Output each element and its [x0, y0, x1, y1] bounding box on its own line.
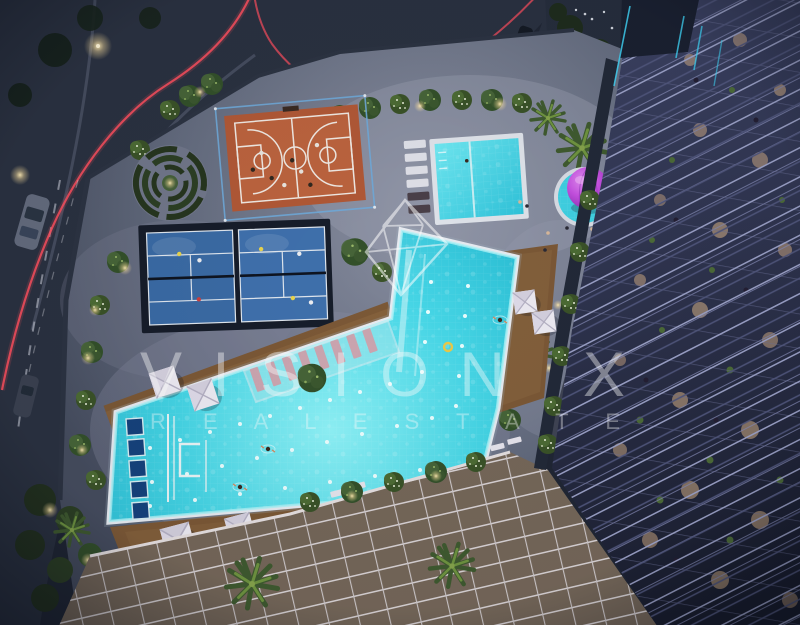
scene-svg: VISION X R E A L E S T A T E — [0, 0, 800, 625]
vignette-overlay — [0, 0, 800, 625]
aerial-night-render: VISION X R E A L E S T A T E — [0, 0, 800, 625]
